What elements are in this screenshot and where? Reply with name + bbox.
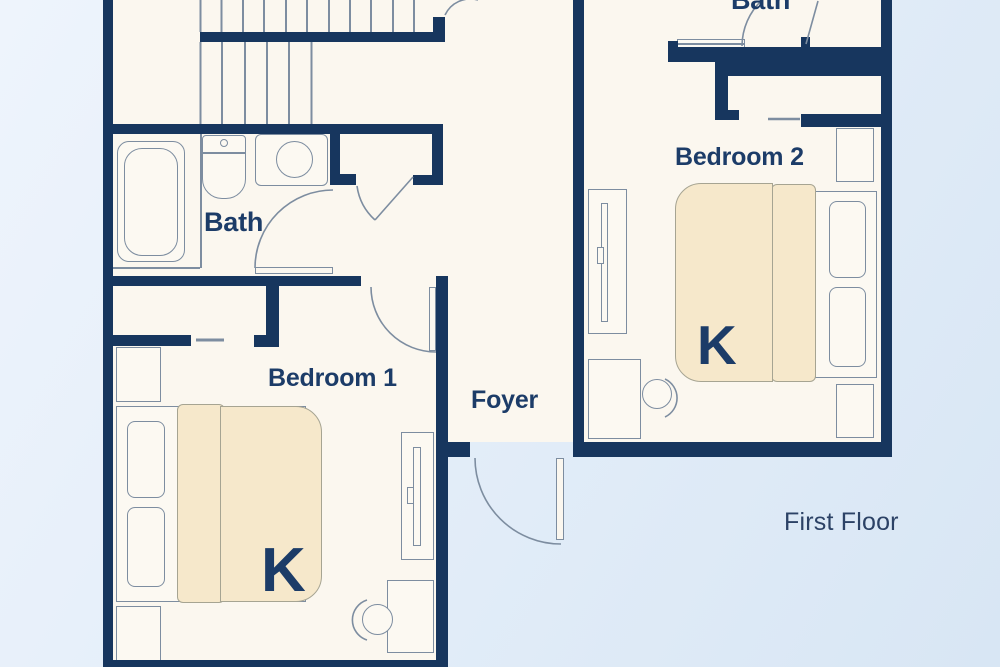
room-label-bath: Bath (204, 209, 263, 236)
wall-upper-bath-bottom (668, 47, 881, 62)
dresser-handle (597, 247, 604, 264)
room-label-bedroom-2: Bedroom 2 (675, 145, 804, 170)
wall-upper-bath-doorstop (801, 37, 810, 47)
wall-vestibule-foot (728, 110, 739, 120)
room-label-foyer: Foyer (471, 388, 538, 413)
wall-bedroom2-bottom (573, 442, 892, 457)
toilet-flush-button (220, 139, 228, 147)
bedroom-2-desk (588, 359, 641, 439)
wall-upper-bath-stub (668, 41, 678, 47)
bath-sink-basin (276, 141, 313, 178)
wall-entry-stub (448, 442, 470, 457)
bedroom1-door-leaf (429, 287, 436, 351)
nightstand (116, 606, 161, 661)
bed-1-size-label: K (261, 540, 306, 602)
hall-foyer-floor (436, 0, 573, 442)
room-label-bath-upper: Bath (731, 0, 790, 14)
entry-door-leaf (556, 458, 564, 540)
wall-bedroom2-north (801, 114, 881, 127)
bed-2-size-label: K (697, 318, 737, 373)
room-label-bedroom-1: Bedroom 1 (268, 366, 397, 391)
nightstand (836, 384, 874, 438)
bathtub-basin (124, 148, 178, 256)
wall-stair-mid (200, 32, 445, 42)
wall-bedroom1-closet-stub (103, 335, 191, 346)
floor-plan: Bath Bath Bedroom 1 Bedroom 2 Foyer K K … (0, 0, 1000, 667)
bed-2-blanket-fold (771, 184, 816, 382)
bed-1-pillow (127, 421, 165, 498)
wall-bath-bottom (103, 276, 361, 286)
bed-1-blanket-fold (177, 404, 225, 603)
wall-bedroom2-left (573, 0, 584, 457)
bedroom-2-chair (642, 379, 672, 409)
bed-2-pillow (829, 287, 866, 367)
bed-1-pillow (127, 507, 165, 587)
wall-bedroom1-closet-foot (254, 335, 279, 347)
wall-closet-bottom-left (330, 174, 356, 185)
bedroom-1-desk (387, 580, 434, 653)
nightstand (116, 347, 161, 402)
wall-bedroom2-top-thick (717, 62, 881, 76)
wall-closet-bottom-right (413, 175, 443, 185)
bedroom-1-chair (362, 604, 393, 635)
wall-left-outer (103, 0, 113, 667)
bed-2-pillow (829, 201, 866, 278)
entry-door-arc (475, 458, 561, 544)
bath-door-leaf (255, 267, 333, 274)
nightstand (836, 128, 874, 182)
wall-bedroom1-bottom (103, 660, 448, 667)
wall-right-outer (881, 0, 892, 457)
wall-stair-notch (433, 17, 445, 32)
dresser-handle (407, 487, 414, 504)
wall-vestibule-left (715, 62, 728, 120)
wall-bedroom1-right (436, 276, 448, 667)
floor-name-label: First Floor (784, 510, 899, 535)
bedroom-1-dresser-mirror (413, 447, 421, 546)
wall-stair-bottom (103, 124, 443, 134)
